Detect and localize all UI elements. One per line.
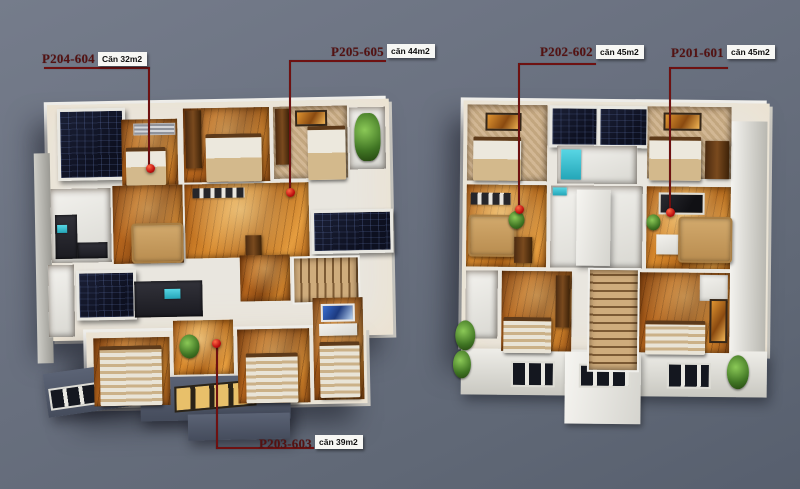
kitchen-counter <box>77 242 107 259</box>
corridor <box>550 185 643 268</box>
ac-vent <box>133 123 175 136</box>
bed <box>649 136 701 181</box>
bedroom <box>183 107 270 183</box>
unit-code-label: P205-605 <box>331 44 384 60</box>
bed <box>205 133 262 182</box>
bedroom <box>501 271 572 352</box>
balcony-garden <box>349 107 386 170</box>
unit-code-label: P203-603 <box>259 436 312 452</box>
leader-line <box>44 67 150 69</box>
bedroom <box>313 297 365 400</box>
balcony-panel <box>57 108 126 181</box>
wall-art <box>321 303 355 322</box>
kitchen-appliance <box>57 225 67 233</box>
plant <box>354 113 381 161</box>
kitchen-counter <box>55 215 78 259</box>
tv-cabinet <box>514 237 532 263</box>
bathroom <box>48 265 75 337</box>
right-plan-side-wall <box>729 121 767 351</box>
bathroom-nook <box>700 275 728 301</box>
bed <box>473 136 521 181</box>
leader-line <box>148 67 150 168</box>
closet-column <box>576 190 611 266</box>
unit-marker-dot <box>666 208 675 217</box>
bed <box>246 352 299 403</box>
living-room <box>112 185 183 264</box>
leader-line <box>520 63 596 65</box>
bathroom <box>557 145 637 184</box>
bedroom <box>467 104 548 181</box>
unit-area-badge: căn 39m2 <box>315 435 363 449</box>
leader-line <box>671 67 728 69</box>
leader-line <box>216 343 218 449</box>
balcony-panel <box>549 105 599 148</box>
unit-code-label: P204-604 <box>42 51 95 67</box>
plant <box>508 211 524 229</box>
wall-art <box>485 113 521 131</box>
bed <box>503 317 551 354</box>
leader-line <box>669 67 671 212</box>
floor-plan-render: P204-604 Căn 32m2 P205-605 căn 44m2 P202… <box>0 0 800 489</box>
sink <box>164 289 180 299</box>
leader-line <box>291 60 386 62</box>
unit-area-badge: Căn 32m2 <box>98 52 147 66</box>
cabinet <box>245 235 261 257</box>
staircase <box>587 268 640 373</box>
sofa <box>131 223 184 264</box>
wardrobe <box>555 275 570 327</box>
aquarium <box>553 187 567 195</box>
living-room <box>646 186 731 269</box>
glass-shower <box>561 149 581 179</box>
facade-window <box>667 363 711 389</box>
coffee-table <box>656 234 678 254</box>
wardrobe <box>185 110 202 168</box>
balcony-panel <box>76 270 137 321</box>
facade-window <box>511 361 555 387</box>
wardrobe <box>705 141 729 179</box>
picture-frames <box>192 187 244 198</box>
wall-art <box>295 110 327 127</box>
unit-area-badge: căn 44m2 <box>387 44 435 58</box>
wardrobe <box>275 109 290 165</box>
bedroom <box>237 328 310 403</box>
balcony-panel <box>311 209 394 255</box>
unit-marker-dot <box>515 205 524 214</box>
unit-marker-dot <box>212 339 221 348</box>
unit-code-label: P201-601 <box>671 45 724 61</box>
bed <box>99 345 162 406</box>
unit-marker-dot <box>286 188 295 197</box>
bed <box>319 341 360 398</box>
shelf <box>319 323 357 336</box>
plant <box>646 214 660 230</box>
bedroom <box>273 105 348 178</box>
sofa <box>678 217 732 264</box>
bedroom <box>93 337 170 406</box>
bed <box>307 125 346 180</box>
unit-code-label: P202-602 <box>540 44 593 60</box>
kitchen <box>50 188 111 263</box>
unit-marker-dot <box>146 164 155 173</box>
picture-frames <box>471 192 511 204</box>
kitchen-counter-island <box>134 280 203 317</box>
leader-line <box>518 63 520 209</box>
kitchen-dining <box>173 320 234 375</box>
landing <box>240 255 291 302</box>
bedroom <box>647 106 732 179</box>
bedroom <box>639 272 730 353</box>
bed <box>645 320 705 355</box>
leader-line <box>289 60 291 192</box>
wall-art <box>709 299 727 343</box>
unit-area-badge: căn 45m2 <box>727 45 775 59</box>
unit-area-badge: căn 45m2 <box>596 45 644 59</box>
balcony-panel <box>597 106 649 149</box>
plant <box>179 334 199 358</box>
living-room <box>466 184 547 267</box>
right-floor-plan <box>450 94 784 437</box>
